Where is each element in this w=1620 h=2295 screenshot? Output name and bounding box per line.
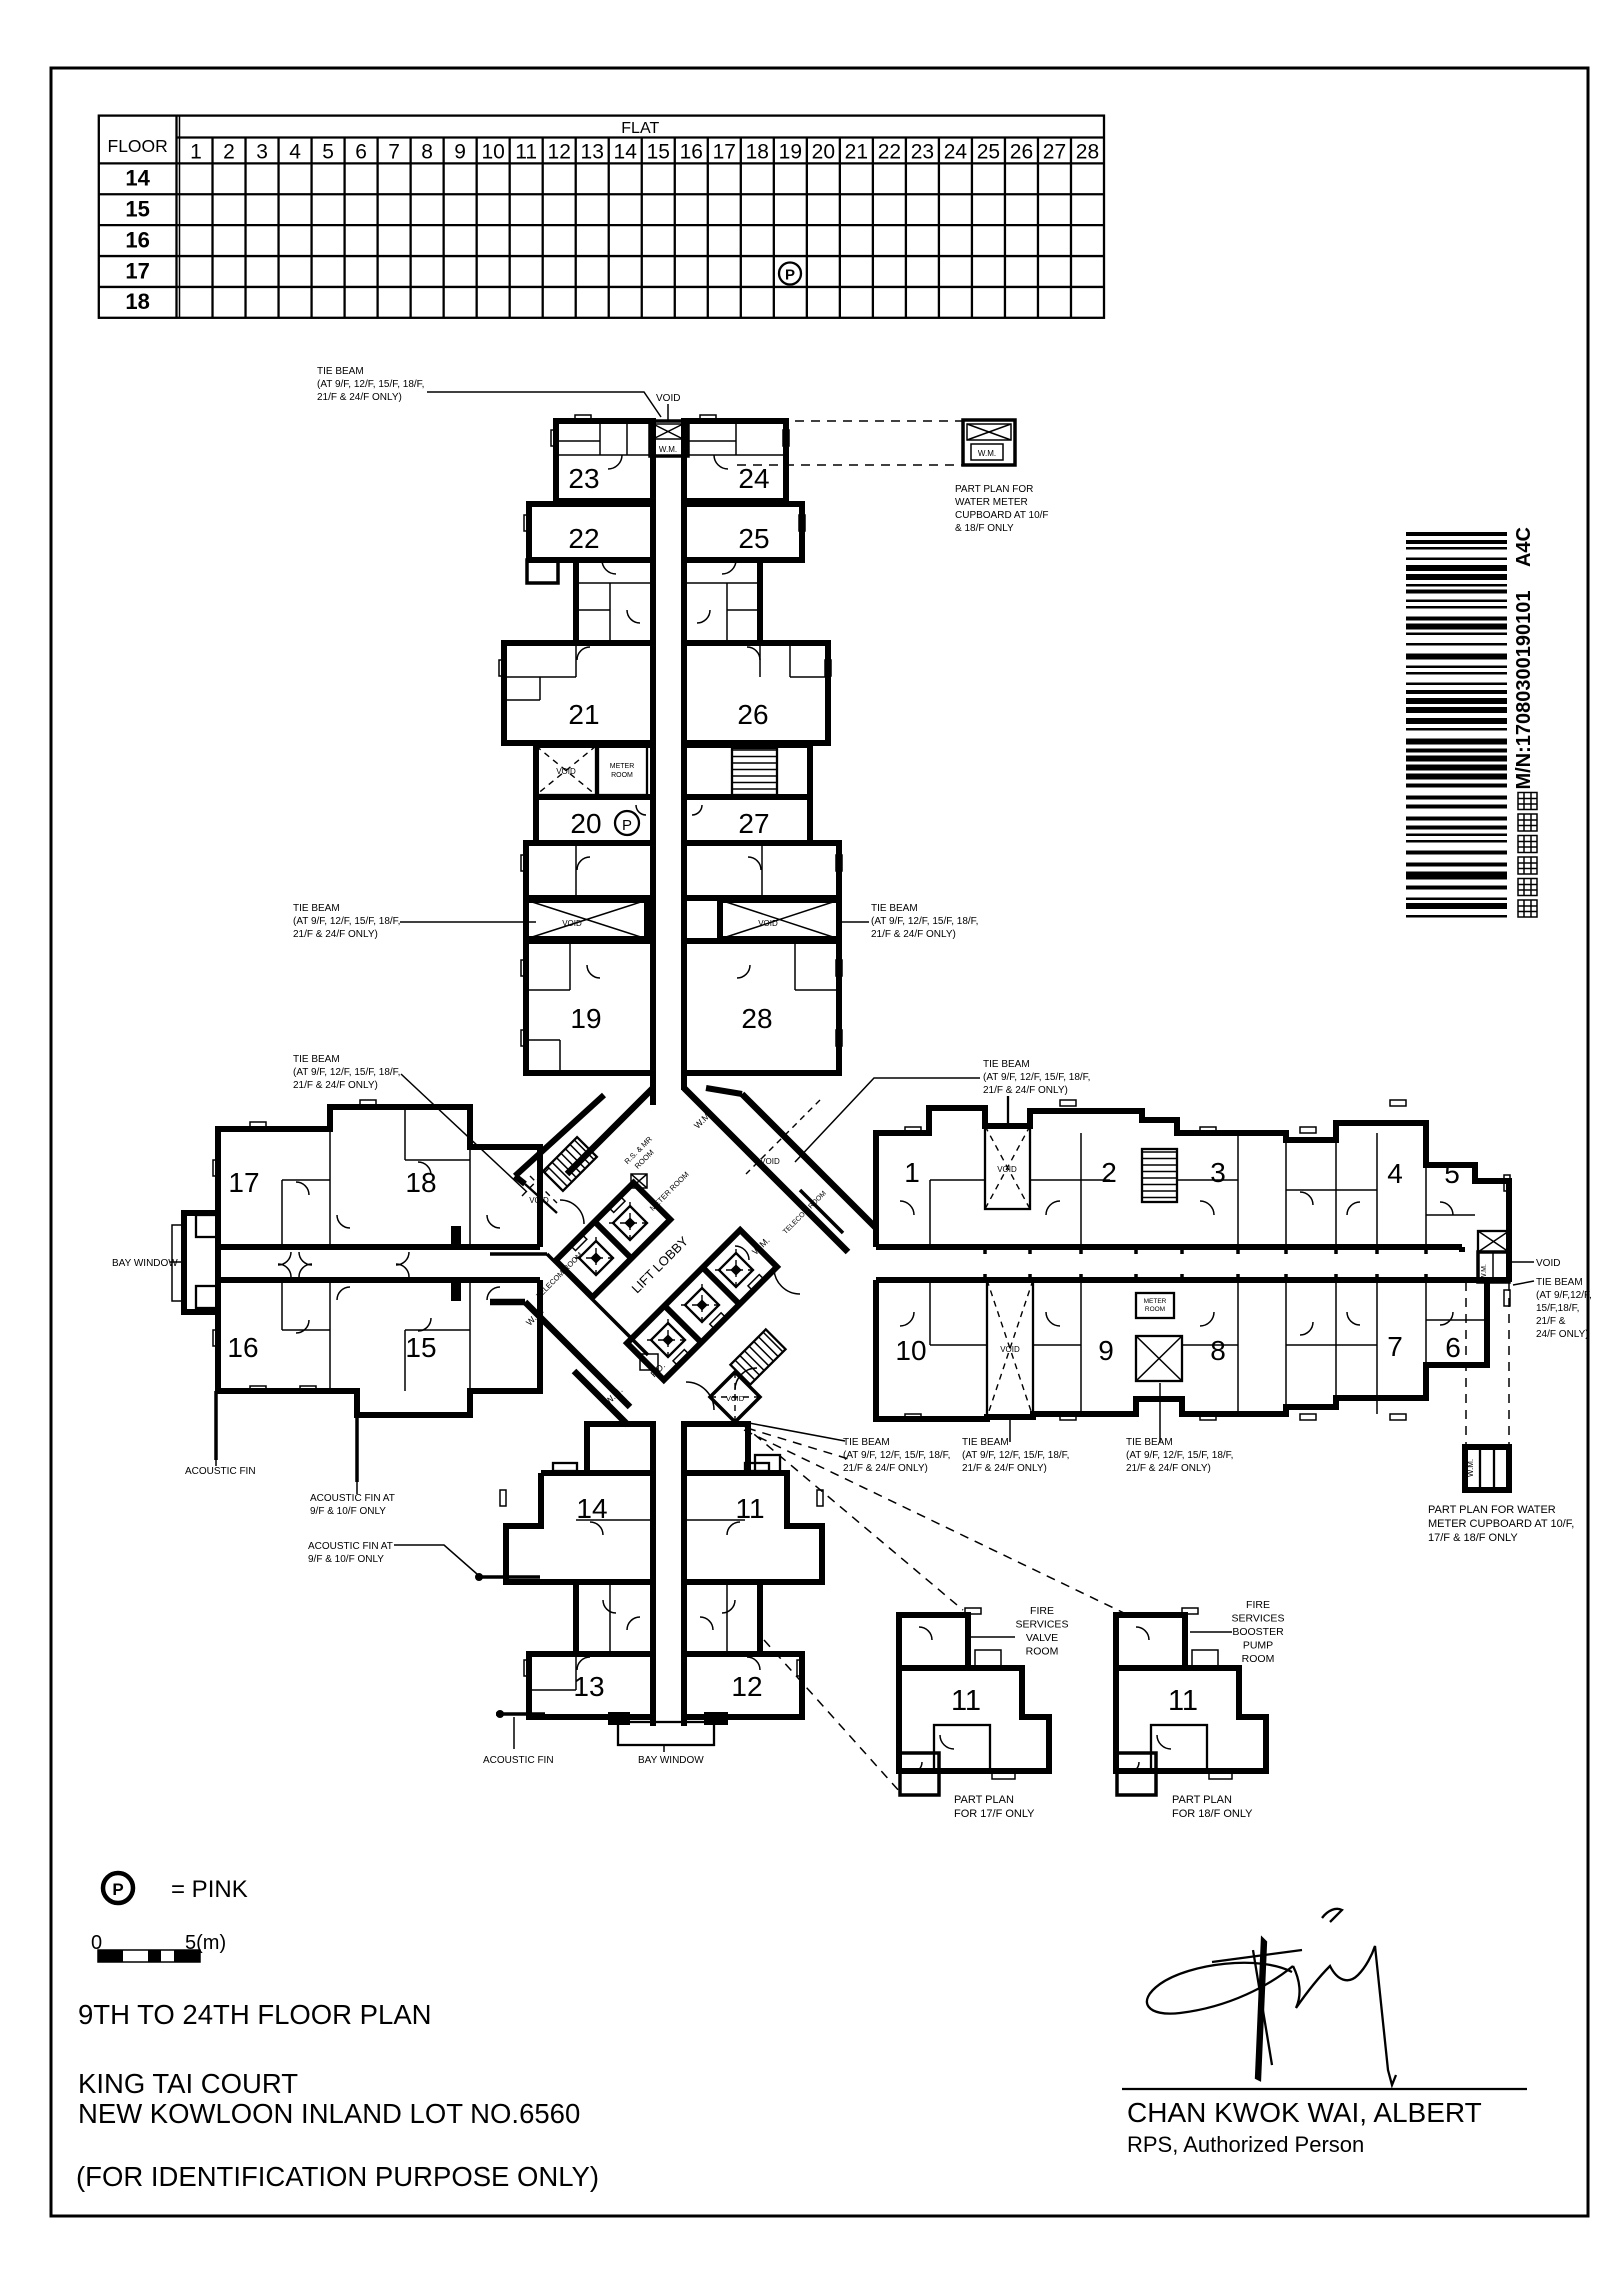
svg-text:25: 25 (738, 523, 769, 554)
svg-text:27: 27 (1043, 141, 1066, 164)
svg-text:8: 8 (421, 141, 433, 164)
svg-text:18: 18 (746, 141, 769, 164)
svg-text:9/F & 10/F ONLY: 9/F & 10/F ONLY (310, 1506, 386, 1517)
svg-text:2: 2 (223, 141, 235, 164)
svg-text:VOID: VOID (758, 919, 778, 928)
svg-text:BOOSTER: BOOSTER (1232, 1626, 1284, 1638)
svg-text:22: 22 (568, 523, 599, 554)
svg-text:A4C: A4C (1513, 527, 1535, 567)
svg-text:SERVICES: SERVICES (1232, 1613, 1285, 1625)
svg-text:ACOUSTIC FIN AT: ACOUSTIC FIN AT (310, 1493, 395, 1504)
svg-text:ACOUSTIC FIN: ACOUSTIC FIN (185, 1466, 256, 1477)
svg-text:16: 16 (125, 227, 149, 252)
svg-text:(AT 9/F, 12/F, 15/F, 18/F,: (AT 9/F, 12/F, 15/F, 18/F, (1126, 1450, 1233, 1461)
svg-text:ROOM: ROOM (1242, 1653, 1275, 1665)
svg-text:VOID: VOID (556, 767, 576, 776)
svg-text:17: 17 (228, 1167, 259, 1198)
svg-text:14: 14 (614, 141, 638, 164)
svg-text:ROOM: ROOM (1145, 1306, 1165, 1313)
svg-text:BAY WINDOW: BAY WINDOW (112, 1258, 178, 1269)
svg-text:17/F & 18/F ONLY: 17/F & 18/F ONLY (1428, 1532, 1518, 1544)
svg-text:3: 3 (256, 141, 268, 164)
svg-text:1: 1 (904, 1157, 920, 1188)
svg-text:11: 11 (951, 1685, 981, 1717)
svg-text:P: P (785, 266, 795, 283)
svg-text:TIE BEAM: TIE BEAM (293, 903, 340, 914)
svg-text:23: 23 (568, 463, 599, 494)
svg-text:VOID: VOID (529, 1196, 549, 1205)
svg-text:W.M.: W.M. (978, 449, 996, 458)
svg-text:TIE BEAM: TIE BEAM (983, 1059, 1030, 1070)
svg-text:W.M.: W.M. (1466, 1459, 1475, 1477)
svg-text:5: 5 (322, 141, 334, 164)
svg-text:(AT 9/F, 12/F, 15/F, 18/F,: (AT 9/F, 12/F, 15/F, 18/F, (293, 916, 400, 927)
svg-text:4: 4 (289, 141, 301, 164)
svg-text:9: 9 (454, 141, 466, 164)
svg-text:26: 26 (1010, 141, 1033, 164)
svg-text:13: 13 (573, 1671, 604, 1702)
svg-text:VALVE: VALVE (1026, 1632, 1058, 1644)
svg-text:VOID: VOID (1000, 1345, 1020, 1354)
svg-text:PART PLAN FOR WATER: PART PLAN FOR WATER (1428, 1504, 1556, 1516)
svg-text:16: 16 (680, 141, 703, 164)
svg-text:10: 10 (895, 1335, 926, 1366)
svg-text:M/N:17080300190101: M/N:17080300190101 (1513, 590, 1535, 789)
svg-text:7: 7 (388, 141, 400, 164)
svg-text:15: 15 (647, 141, 670, 164)
svg-text:= PINK: = PINK (171, 1876, 248, 1903)
svg-text:6: 6 (355, 141, 367, 164)
svg-text:VOID: VOID (760, 1157, 780, 1166)
svg-text:11: 11 (515, 141, 537, 164)
svg-text:TIE BEAM: TIE BEAM (871, 903, 918, 914)
svg-text:(AT 9/F, 12/F, 15/F, 18/F,: (AT 9/F, 12/F, 15/F, 18/F, (293, 1067, 400, 1078)
svg-text:13: 13 (581, 141, 604, 164)
svg-text:TIE BEAM: TIE BEAM (1126, 1437, 1173, 1448)
svg-text:FOR 17/F ONLY: FOR 17/F ONLY (954, 1808, 1035, 1820)
svg-text:VOID: VOID (997, 1165, 1017, 1174)
svg-text:W.M.: W.M. (1481, 1264, 1488, 1280)
svg-text:METER: METER (1144, 1298, 1167, 1305)
svg-text:PART PLAN FOR: PART PLAN FOR (955, 484, 1033, 495)
svg-text:CUPBOARD AT 10/F: CUPBOARD AT 10/F (955, 510, 1049, 521)
svg-text:ROOM: ROOM (1026, 1646, 1059, 1658)
svg-text:9: 9 (1098, 1335, 1114, 1366)
svg-text:PUMP: PUMP (1243, 1640, 1273, 1652)
svg-text:28: 28 (741, 1003, 772, 1034)
svg-text:6: 6 (1445, 1332, 1461, 1363)
svg-text:(AT 9/F, 12/F, 15/F, 18/F,: (AT 9/F, 12/F, 15/F, 18/F, (983, 1072, 1090, 1083)
svg-text:NEW KOWLOON INLAND LOT NO.6560: NEW KOWLOON INLAND LOT NO.6560 (78, 2098, 580, 2129)
svg-text:1: 1 (190, 141, 202, 164)
svg-text:21/F & 24/F ONLY): 21/F & 24/F ONLY) (293, 929, 378, 940)
svg-text:FIRE: FIRE (1246, 1599, 1270, 1611)
svg-text:21/F & 24/F ONLY): 21/F & 24/F ONLY) (317, 392, 402, 403)
svg-text:TIE BEAM: TIE BEAM (843, 1437, 890, 1448)
svg-text:27: 27 (738, 808, 769, 839)
svg-text:VOID: VOID (1536, 1258, 1560, 1269)
svg-text:20: 20 (570, 808, 601, 839)
svg-text:26: 26 (737, 699, 768, 730)
svg-text:21/F & 24/F ONLY): 21/F & 24/F ONLY) (293, 1080, 378, 1091)
svg-text:WATER METER: WATER METER (955, 497, 1028, 508)
svg-text:TIE BEAM: TIE BEAM (962, 1437, 1009, 1448)
svg-text:11: 11 (1168, 1685, 1198, 1717)
svg-text:9TH TO 24TH FLOOR PLAN: 9TH TO 24TH FLOOR PLAN (78, 1999, 432, 2030)
svg-text:2: 2 (1101, 1157, 1117, 1188)
svg-text:8: 8 (1210, 1335, 1226, 1366)
svg-text:23: 23 (911, 141, 934, 164)
svg-text:(AT 9/F, 12/F, 15/F, 18/F,: (AT 9/F, 12/F, 15/F, 18/F, (843, 1450, 950, 1461)
svg-text:ROOM: ROOM (611, 772, 633, 779)
svg-text:(AT 9/F,12/F,: (AT 9/F,12/F, (1536, 1290, 1592, 1301)
svg-text:(AT 9/F, 12/F, 15/F, 18/F,: (AT 9/F, 12/F, 15/F, 18/F, (871, 916, 978, 927)
svg-text:& 18/F ONLY: & 18/F ONLY (955, 523, 1014, 534)
svg-text:10: 10 (481, 141, 504, 164)
svg-text:TIE BEAM: TIE BEAM (317, 366, 364, 377)
svg-text:W.M.: W.M. (659, 445, 677, 454)
svg-text:21/F & 24/F ONLY): 21/F & 24/F ONLY) (983, 1085, 1068, 1096)
svg-text:P: P (112, 1880, 123, 1899)
svg-text:ACOUSTIC FIN AT: ACOUSTIC FIN AT (308, 1541, 393, 1552)
svg-text:(AT 9/F, 12/F, 15/F, 18/F,: (AT 9/F, 12/F, 15/F, 18/F, (962, 1450, 1069, 1461)
svg-text:PART PLAN: PART PLAN (954, 1794, 1014, 1806)
svg-text:25: 25 (977, 141, 1000, 164)
svg-text:15: 15 (125, 197, 149, 222)
svg-text:21/F & 24/F ONLY): 21/F & 24/F ONLY) (962, 1463, 1047, 1474)
svg-text:FIRE: FIRE (1030, 1605, 1054, 1617)
svg-text:FLAT: FLAT (621, 120, 659, 137)
svg-text:17: 17 (713, 141, 736, 164)
svg-text:KING TAI COURT: KING TAI COURT (78, 2068, 298, 2099)
svg-text:16: 16 (227, 1332, 258, 1363)
svg-text:20: 20 (812, 141, 835, 164)
svg-text:24: 24 (944, 141, 968, 164)
svg-text:21/F & 24/F ONLY): 21/F & 24/F ONLY) (1126, 1463, 1211, 1474)
svg-text:24: 24 (738, 463, 769, 494)
svg-text:12: 12 (731, 1671, 762, 1702)
svg-text:SERVICES: SERVICES (1016, 1619, 1069, 1631)
svg-text:21: 21 (845, 141, 868, 164)
svg-text:FOR 18/F ONLY: FOR 18/F ONLY (1172, 1808, 1253, 1820)
svg-text:15/F,18/F,: 15/F,18/F, (1536, 1303, 1579, 1314)
svg-text:METER: METER (610, 763, 635, 770)
svg-text:21/F & 24/F ONLY): 21/F & 24/F ONLY) (843, 1463, 928, 1474)
svg-text:P: P (622, 817, 632, 834)
svg-text:5: 5 (1444, 1158, 1460, 1189)
svg-text:4: 4 (1387, 1158, 1403, 1189)
svg-text:TIE BEAM: TIE BEAM (293, 1054, 340, 1065)
svg-text:28: 28 (1076, 141, 1099, 164)
svg-text:9/F & 10/F ONLY: 9/F & 10/F ONLY (308, 1554, 384, 1565)
svg-text:(FOR IDENTIFICATION PURPOSE ON: (FOR IDENTIFICATION PURPOSE ONLY) (76, 2161, 599, 2192)
svg-text:VOID: VOID (562, 919, 582, 928)
svg-text:METER CUPBOARD AT 10/F,: METER CUPBOARD AT 10/F, (1428, 1518, 1574, 1530)
svg-text:18: 18 (405, 1167, 436, 1198)
svg-text:FLOOR: FLOOR (108, 136, 168, 156)
svg-text:14: 14 (576, 1493, 607, 1524)
svg-text:15: 15 (405, 1332, 436, 1363)
svg-text:17: 17 (125, 258, 149, 283)
svg-text:21/F &: 21/F & (1536, 1316, 1566, 1327)
svg-text:19: 19 (779, 141, 802, 164)
svg-text:21: 21 (568, 699, 599, 730)
svg-text:3: 3 (1210, 1157, 1226, 1188)
svg-text:TIE BEAM: TIE BEAM (1536, 1277, 1583, 1288)
svg-text:BAY WINDOW: BAY WINDOW (638, 1755, 704, 1766)
svg-text:7: 7 (1387, 1331, 1403, 1362)
svg-text:12: 12 (548, 141, 571, 164)
svg-text:PART PLAN: PART PLAN (1172, 1794, 1232, 1806)
svg-text:VOID: VOID (726, 1394, 745, 1403)
svg-text:24/F ONLY): 24/F ONLY) (1536, 1329, 1589, 1340)
svg-text:21/F & 24/F ONLY): 21/F & 24/F ONLY) (871, 929, 956, 940)
svg-text:(AT 9/F, 12/F, 15/F, 18/F,: (AT 9/F, 12/F, 15/F, 18/F, (317, 379, 424, 390)
svg-text:VOID: VOID (656, 393, 680, 404)
svg-text:19: 19 (570, 1003, 601, 1034)
svg-text:14: 14 (125, 166, 150, 191)
svg-text:11: 11 (735, 1493, 764, 1524)
svg-text:22: 22 (878, 141, 901, 164)
svg-text:RPS, Authorized Person: RPS, Authorized Person (1127, 2132, 1364, 2157)
svg-text:ACOUSTIC FIN: ACOUSTIC FIN (483, 1755, 554, 1766)
svg-text:CHAN KWOK WAI, ALBERT: CHAN KWOK WAI, ALBERT (1127, 2097, 1482, 2128)
svg-text:18: 18 (125, 289, 149, 314)
